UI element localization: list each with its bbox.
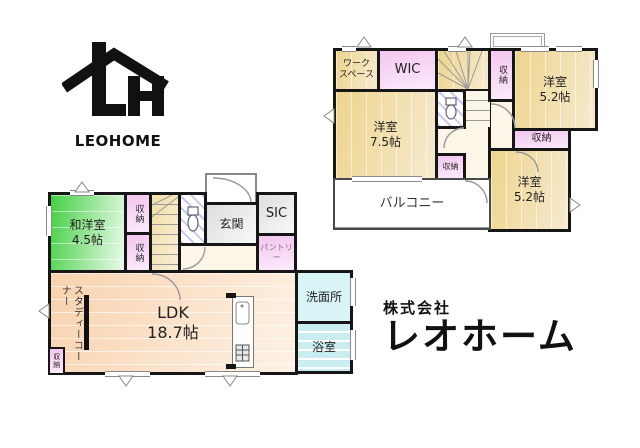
window-marker-down (118, 375, 134, 387)
floor1-plan: 和洋室 4.5帖 収納 収納 玄関 SIC (0, 0, 640, 448)
window-marker-down (222, 375, 238, 387)
floor1-closet-ldk: 収納 (48, 347, 65, 375)
floor1-closet-lower-label: 収納 (133, 243, 144, 263)
floorplan-flyer: LEOHOME ワーク スペース WIC (0, 0, 640, 448)
floor1-toilet (178, 192, 207, 246)
room-pantry-label: パントリー (259, 243, 294, 263)
room-washroom-label: 洗面所 (306, 290, 342, 305)
window-marker-up (74, 181, 90, 193)
company-name: レオホーム (383, 318, 577, 357)
kitchen-counter (232, 296, 254, 368)
floor1-closet-upper-label: 収納 (133, 204, 144, 224)
floor1-stairs-winder-icon (152, 195, 178, 270)
toilet-icon (186, 206, 200, 232)
room-japanese-label: 和洋室 4.5帖 (69, 218, 105, 247)
window (350, 278, 356, 306)
room-sic: SIC (256, 192, 297, 236)
wall-stub (226, 364, 236, 369)
window-marker-left (38, 303, 50, 319)
room-pantry: パントリー (256, 233, 297, 273)
room-sic-label: SIC (266, 206, 287, 222)
room-bathroom-label: 浴室 (312, 340, 336, 355)
study-desk (84, 295, 89, 350)
wall-stub (226, 293, 236, 298)
floor1-stairs (149, 192, 181, 273)
entrance-door-arc (212, 177, 252, 204)
room-japanese: 和洋室 4.5帖 (48, 192, 127, 273)
floor1-closet-ldk-label: 収納 (52, 353, 61, 369)
window (46, 206, 52, 236)
room-ldk-label: LDK 18.7帖 (147, 303, 199, 342)
room-bathroom: 浴室 (295, 321, 353, 374)
door-arc (151, 273, 181, 301)
floor1-closet-lower: 収納 (124, 232, 152, 273)
room-entrance: 玄関 (204, 202, 259, 246)
room-washroom: 洗面所 (295, 270, 353, 324)
room-entrance-label: 玄関 (219, 217, 243, 232)
floor1-closet-upper: 収納 (124, 192, 152, 235)
kitchen-sink-stove-icon (233, 297, 252, 366)
window (350, 330, 356, 360)
door-arc (182, 246, 206, 270)
company-signature: 株式会社 レオホーム (383, 297, 577, 357)
